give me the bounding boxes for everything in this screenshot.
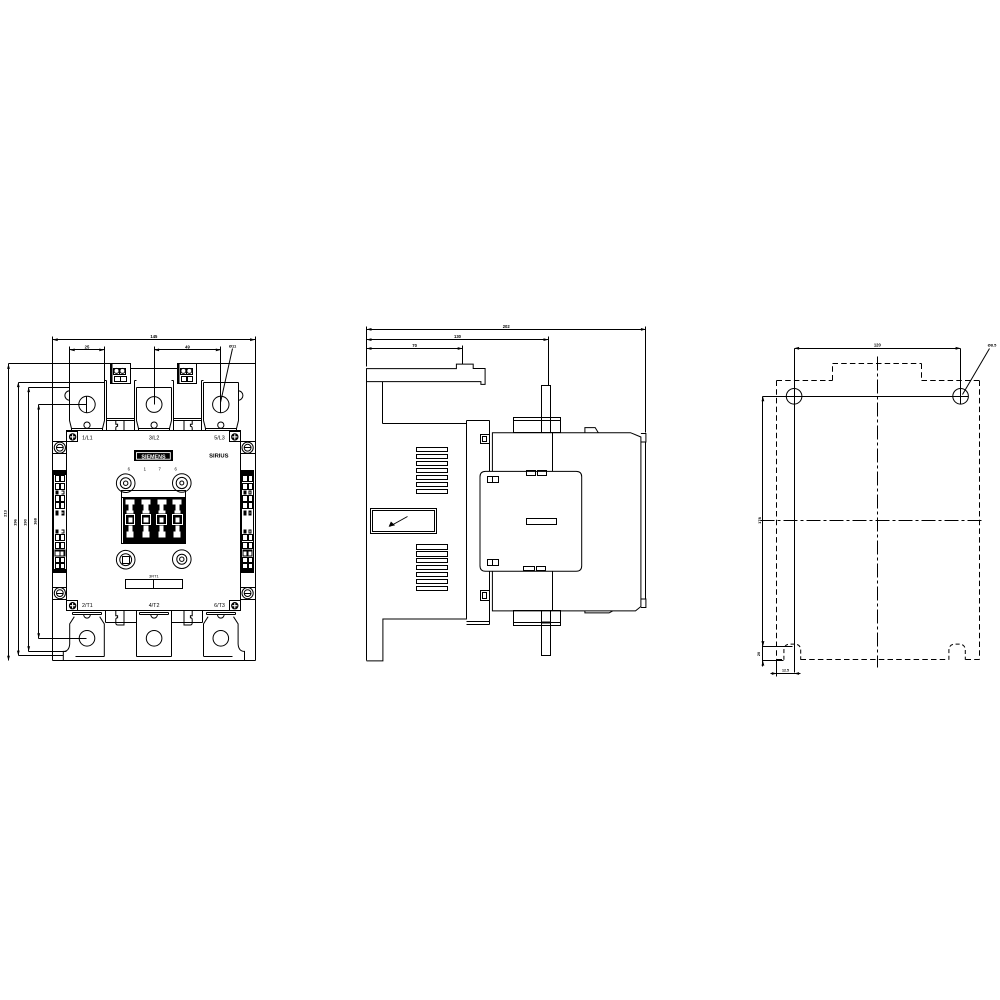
svg-text:1: 1: [144, 467, 147, 472]
svg-text:2/T1: 2/T1: [82, 603, 93, 609]
svg-text:3/L2: 3/L2: [149, 435, 160, 441]
svg-text:145: 145: [150, 334, 158, 339]
svg-text:6: 6: [175, 467, 178, 472]
svg-text:49: 49: [185, 344, 190, 349]
svg-text:130: 130: [454, 334, 462, 339]
svg-text:70: 70: [412, 343, 417, 348]
svg-text:1/L1: 1/L1: [82, 435, 93, 441]
svg-text:20: 20: [757, 652, 761, 656]
svg-text:25: 25: [85, 344, 90, 349]
svg-text:SIRIUS: SIRIUS: [209, 454, 228, 460]
svg-text:6/T3: 6/T3: [214, 603, 225, 609]
svg-text:190: 190: [23, 518, 28, 525]
svg-text:202: 202: [503, 324, 511, 329]
svg-text:196: 196: [12, 518, 17, 525]
svg-text:168: 168: [33, 517, 38, 524]
svg-text:213: 213: [3, 509, 8, 516]
svg-text:12.5: 12.5: [782, 669, 789, 673]
svg-text:3RT1: 3RT1: [149, 573, 159, 578]
svg-text:4/T2: 4/T2: [149, 603, 160, 609]
svg-text:120: 120: [874, 343, 882, 348]
svg-text:Ø8.5: Ø8.5: [988, 343, 997, 348]
svg-text:7: 7: [159, 467, 162, 472]
svg-text:178: 178: [757, 516, 762, 523]
svg-text:SIEMENS: SIEMENS: [141, 455, 166, 461]
svg-text:5/L3: 5/L3: [214, 435, 225, 441]
svg-text:Ø11: Ø11: [229, 344, 237, 349]
svg-text:6: 6: [128, 467, 131, 472]
